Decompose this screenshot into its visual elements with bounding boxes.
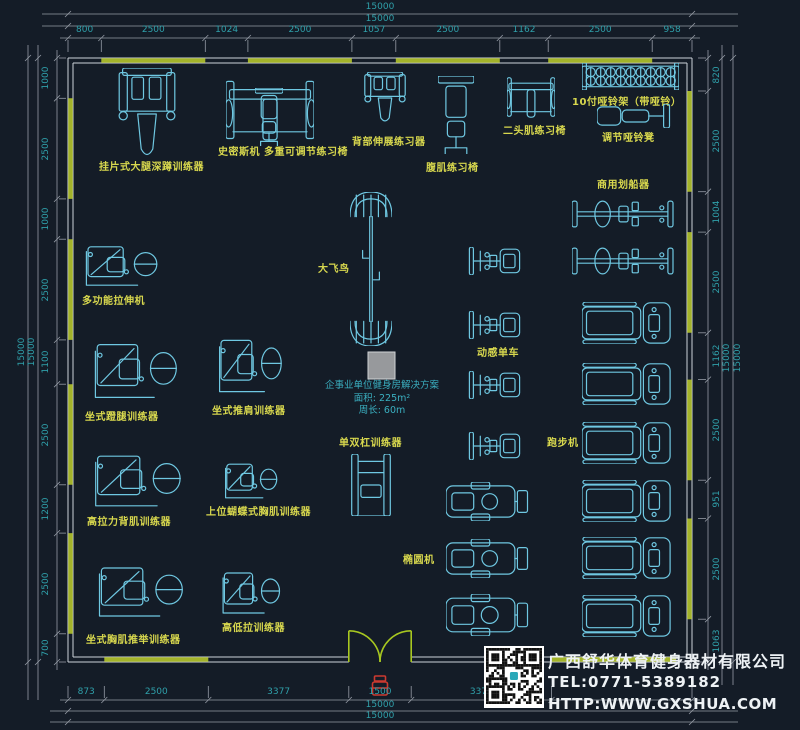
dimension-value: 2500 xyxy=(712,130,722,153)
plan-note-perimeter: 周长: 60m xyxy=(312,405,452,418)
plan-note-area: 面积: 225m² xyxy=(312,393,452,406)
hack-squat-trainer-label: 挂片式大腿深蹲训练器 xyxy=(99,158,204,173)
dimension-value: 1100 xyxy=(41,351,51,374)
dimension-value: 15000 xyxy=(722,344,732,373)
dimension-value: 15000 xyxy=(27,338,37,367)
spin-bike-2 xyxy=(466,311,523,339)
treadmill-3-label: 跑步机 xyxy=(547,434,579,449)
dimension-value: 15000 xyxy=(733,344,743,373)
dimension-value: 15000 xyxy=(366,2,395,12)
seated-shoulder-press xyxy=(214,334,284,398)
dimension-value: 2500 xyxy=(145,687,168,697)
treadmill-2 xyxy=(582,363,671,405)
dimension-value: 2500 xyxy=(41,278,51,301)
dimension-value: 3377 xyxy=(267,687,290,697)
ab-bench-label: 腹肌练习椅 xyxy=(426,159,479,174)
dimension-value: 2500 xyxy=(712,418,722,441)
dimension-value: 820 xyxy=(712,66,722,83)
dimension-value: 1500 xyxy=(369,687,392,697)
seated-shoulder-press-label: 坐式推肩训练器 xyxy=(212,402,286,417)
high-low-pulley xyxy=(218,568,282,618)
spin-bike-3 xyxy=(466,371,523,399)
company-name: 广西舒华体育健身器材有限公司 xyxy=(548,648,786,672)
rowing-machine-1-label: 商用划船器 xyxy=(597,176,650,191)
dimension-value: 1200 xyxy=(41,498,51,521)
dimension-value: 2500 xyxy=(41,423,51,446)
dimension-value: 951 xyxy=(712,491,722,508)
ab-bench xyxy=(438,76,474,154)
dimension-value: 15000 xyxy=(366,711,395,721)
elliptical-1 xyxy=(446,482,530,521)
dimension-value: 2500 xyxy=(436,25,459,35)
dumbbell-bench-label: 调节哑铃凳 xyxy=(602,129,655,144)
treadmill-4 xyxy=(582,480,671,522)
dimension-value: 2500 xyxy=(712,557,722,580)
spin-bike-4 xyxy=(466,432,523,460)
lat-pulldown xyxy=(88,450,184,512)
dimension-value: 1162 xyxy=(712,345,722,368)
seated-leg-press xyxy=(88,338,180,404)
lat-pulldown-label: 高拉力背肌训练器 xyxy=(87,513,171,528)
dimension-value: 1004 xyxy=(712,200,722,223)
dimension-value: 15000 xyxy=(366,700,395,710)
dimension-value: 15000 xyxy=(366,14,395,24)
qr-code-pattern xyxy=(486,648,542,704)
dumbbell-rack xyxy=(582,63,679,90)
plan-note-title: 企事业单位健身房解决方案 xyxy=(312,380,452,393)
company-phone: TEL:0771-5389182 xyxy=(548,673,721,691)
dip-station xyxy=(348,454,394,516)
dimension-value: 873 xyxy=(78,687,95,697)
biceps-bench-label: 二头肌练习椅 xyxy=(503,122,566,137)
pec-fly xyxy=(221,460,279,502)
adjustable-bench xyxy=(255,88,283,146)
back-extension xyxy=(364,72,406,124)
spin-bike-2-label: 动感单车 xyxy=(477,344,519,359)
seated-chest-press-label: 坐式胸肌推举训练器 xyxy=(86,631,181,646)
qr-code xyxy=(484,646,544,708)
dimension-value: 2500 xyxy=(142,25,165,35)
dimension-value: 1057 xyxy=(362,25,385,35)
dip-station-label: 单双杠训练器 xyxy=(339,434,402,449)
smith-machine-label: 史密斯机 xyxy=(218,143,260,158)
dimension-value: 1000 xyxy=(41,67,51,90)
elliptical-3 xyxy=(446,594,530,636)
cable-crossover xyxy=(350,192,392,346)
plan-note: 企事业单位健身房解决方案 面积: 225m² 周长: 60m xyxy=(312,380,452,418)
seated-leg-press-label: 坐式蹬腿训练器 xyxy=(85,408,159,423)
dimension-value: 2500 xyxy=(589,25,612,35)
treadmill-3 xyxy=(582,422,671,464)
dimension-value: 2500 xyxy=(288,25,311,35)
dimension-value: 700 xyxy=(41,639,51,656)
spin-bike-1 xyxy=(466,247,523,275)
adjustable-bench-label: 多重可调节练习椅 xyxy=(264,143,348,158)
hack-squat-trainer xyxy=(118,68,176,160)
dimension-value: 2500 xyxy=(41,572,51,595)
company-website: HTTP:WWW.GXSHUA.COM xyxy=(548,695,777,713)
seated-chest-press xyxy=(92,562,186,622)
rowing-machine-1 xyxy=(572,200,674,228)
elliptical-2-label: 椭圆机 xyxy=(403,551,435,566)
multi-stretch-machine xyxy=(80,242,160,290)
dimension-value: 800 xyxy=(76,25,93,35)
dimension-value: 1162 xyxy=(513,25,536,35)
dimension-value: 2500 xyxy=(41,137,51,160)
dimension-value: 15000 xyxy=(17,338,27,367)
pec-fly-label: 上位蝴蝶式胸肌训练器 xyxy=(206,503,311,518)
rowing-machine-2 xyxy=(572,247,674,275)
high-low-pulley-label: 高低拉训练器 xyxy=(222,619,285,634)
cable-crossover-label: 大飞鸟 xyxy=(318,260,350,275)
dumbbell-bench xyxy=(597,104,671,128)
cad-floorplan-canvas: 8002500102425001057250011622500958100025… xyxy=(0,0,800,730)
elliptical-2 xyxy=(446,539,530,578)
dimension-value: 1024 xyxy=(215,25,238,35)
dimension-value: 2500 xyxy=(712,271,722,294)
dimension-value: 958 xyxy=(664,25,681,35)
treadmill-6 xyxy=(582,595,671,637)
biceps-bench xyxy=(507,74,555,120)
dimension-value: 1000 xyxy=(41,208,51,231)
multi-stretch-machine-label: 多功能拉伸机 xyxy=(82,292,145,307)
treadmill-5 xyxy=(582,537,671,579)
back-extension-label: 背部伸展练习器 xyxy=(352,133,426,148)
treadmill-1 xyxy=(582,302,671,344)
